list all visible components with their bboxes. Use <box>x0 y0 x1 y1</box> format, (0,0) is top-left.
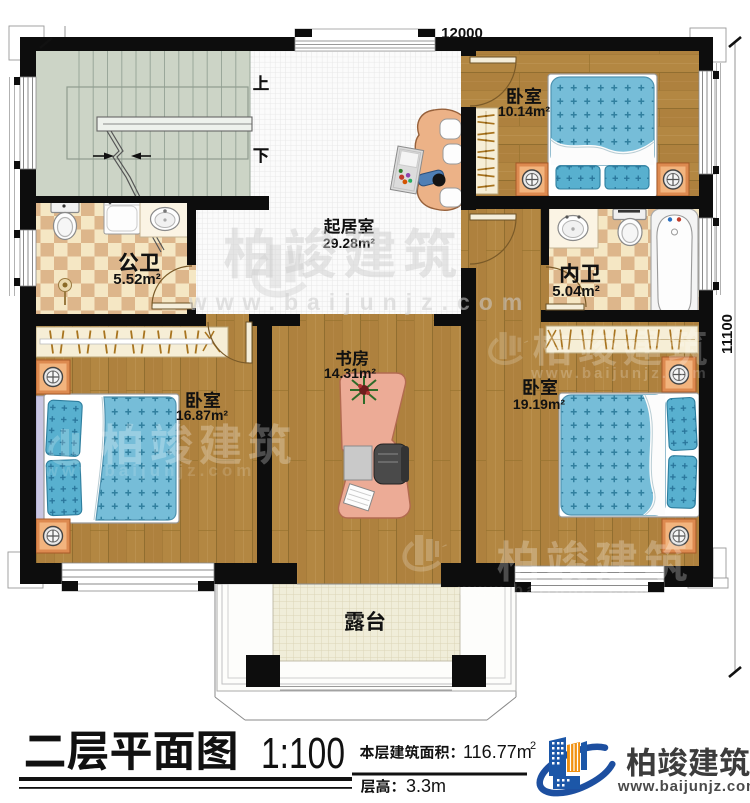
svg-text:2: 2 <box>530 740 536 752</box>
svg-text:www.baijunjz.com: www.baijunjz.com <box>457 582 652 599</box>
svg-text:www.baijunjz.com: www.baijunjz.com <box>530 365 708 382</box>
svg-text:5.52m²: 5.52m² <box>113 271 161 288</box>
svg-text:www.baijunjz.com: www.baijunjz.com <box>188 289 532 315</box>
svg-text:www.baijunjz.com: www.baijunjz.com <box>44 461 256 480</box>
svg-text:www.baijunjz.com: www.baijunjz.com <box>617 778 750 795</box>
svg-text:12000: 12000 <box>441 25 483 42</box>
svg-text:3.3m: 3.3m <box>406 776 446 796</box>
svg-text:1:100: 1:100 <box>261 729 345 778</box>
svg-text:16.87m²: 16.87m² <box>176 407 228 423</box>
svg-text:19.19m²: 19.19m² <box>513 396 565 412</box>
svg-text:10.14m²: 10.14m² <box>498 103 550 119</box>
svg-text:11100: 11100 <box>719 314 736 354</box>
svg-text:5.04m²: 5.04m² <box>552 283 600 300</box>
svg-text:14.31m²: 14.31m² <box>324 365 376 381</box>
svg-text:116.77m: 116.77m <box>463 742 532 762</box>
